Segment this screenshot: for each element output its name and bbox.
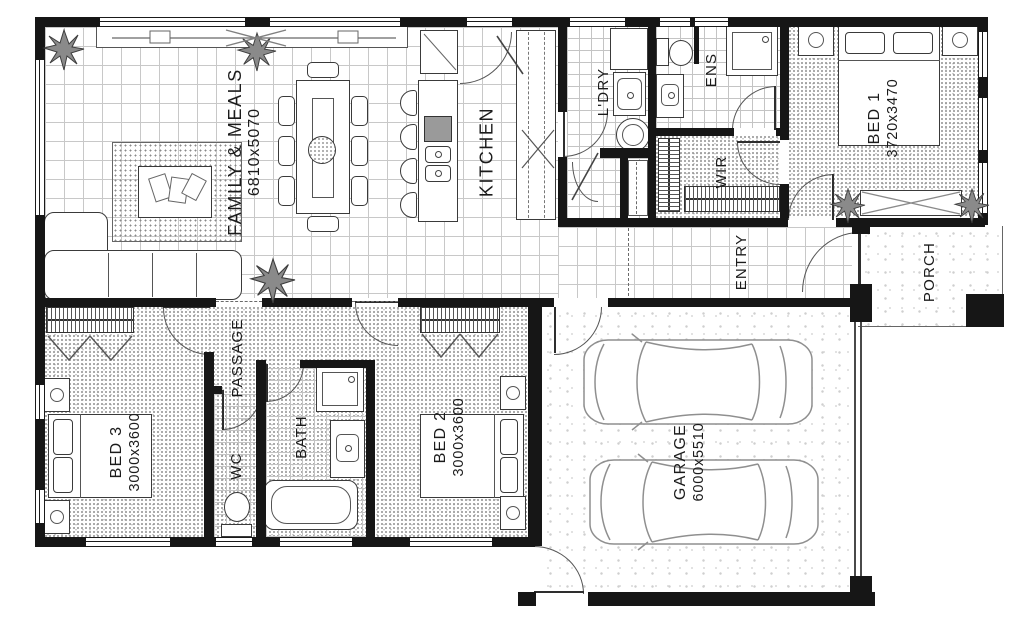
shower-drain [762,36,769,43]
basin-drain [345,445,352,452]
sofa-cushion-line [152,253,153,297]
wall [558,157,567,227]
window [410,537,492,547]
room-name: KITCHEN [478,107,497,197]
wall [262,298,352,307]
room-label-bed2: BED 2 3000x3600 [433,398,467,477]
wardrobe-rail [684,186,780,212]
window [978,98,988,150]
wall [204,386,222,394]
sink-drain [435,151,442,158]
sofa [44,250,242,300]
wall [780,26,789,140]
room-name: BED 1 [867,92,884,145]
wall [656,128,734,136]
room-label-wir: WIR [714,156,730,189]
trough-drain [627,92,634,99]
door-leaf [222,390,224,430]
wall [600,148,648,158]
toilet-bowl [669,40,693,66]
room-name: BATH [294,415,310,459]
pillow [53,419,73,455]
blanket-line [80,414,81,498]
window [86,537,170,547]
wall [608,298,872,307]
door-leaf [737,141,780,143]
tv-unit [96,26,408,48]
wall [204,352,214,540]
room-name: L'DRY [596,68,612,117]
room-label-entry: ENTRY [734,234,750,291]
room-name: WIR [714,156,730,189]
wall [398,298,528,307]
window [100,17,245,27]
door-leaf [534,591,584,593]
wall [694,26,699,64]
dining-chair [307,216,339,232]
room-dims: 6810x5070 [247,108,264,196]
washing-machine-drum [622,124,644,146]
porch-pier [966,294,1004,327]
centrepiece-bowl [308,136,336,164]
basin-drain [668,92,675,99]
wall [256,360,266,540]
ceiling-dashed-line [628,228,629,296]
pillow [500,457,518,493]
pillow [500,419,518,455]
linen-cupboard [628,160,648,216]
wall [300,360,374,368]
window [978,32,988,77]
cooktop [424,116,452,142]
laundry-bench [610,28,648,70]
linen-dashed-line [636,162,637,214]
wall [648,26,656,218]
window [695,17,728,27]
dining-chair [307,62,339,78]
wardrobe-rail [658,138,680,212]
dining-chair [278,136,295,166]
wall [558,17,567,112]
garage-door [854,320,856,578]
room-name: PORCH [922,242,938,302]
wall [528,298,542,546]
door-leaf [554,307,556,353]
window [978,163,988,213]
window [660,17,690,27]
wardrobe-rail [46,307,134,333]
window [280,537,352,547]
room-label-ensuite: ENS [704,53,720,87]
opening-dashed-line [352,301,398,302]
wall [588,592,875,606]
room-name: GARAGE [673,424,690,500]
fridge [420,30,458,74]
window [570,17,625,27]
pantry-shelf-line [544,32,545,218]
wall [35,298,216,307]
wardrobe-rail [420,307,500,333]
garage-door [860,320,862,578]
window [35,490,45,523]
room-label-laundry: L'DRY [596,68,612,117]
room-dims: 3720x3470 [886,79,901,158]
room-label-bed3: BED 3 3000x3600 [109,413,143,492]
dining-chair [278,96,295,126]
door-leaf [266,364,268,402]
wall [518,592,536,606]
room-name: BED 2 [433,411,450,464]
room-dims: 6000x5510 [692,423,707,502]
wall [366,360,375,540]
window [467,17,512,27]
sink-drain [435,170,442,177]
room-label-bed1: BED 1 3720x3470 [867,79,901,158]
bedside-lamp [50,510,64,524]
window [270,17,400,27]
wall [780,184,789,218]
room-name: ENS [704,53,720,87]
room-label-wc: WC [229,452,245,479]
toilet-cistern [221,524,252,537]
toilet-cistern [656,38,669,66]
window [35,385,45,419]
pillow [845,32,885,54]
bedside-lamp [808,32,824,48]
dining-chair [351,136,368,166]
dining-chair [351,176,368,206]
pantry-cabinet [516,30,556,220]
room-label-passage: PASSAGE [230,319,246,398]
bedside-lamp [50,388,64,402]
room-label-porch: PORCH [922,242,938,302]
room-label-bath: BATH [294,415,310,459]
door-leaf [774,86,776,130]
window [35,60,45,215]
room-name: PASSAGE [230,319,246,398]
room-dims: 3000x3600 [128,413,143,492]
blanket-line [494,414,495,498]
room-name: WC [229,452,245,479]
sofa-cushion-line [196,253,197,297]
floor-plan: FAMILY & MEALS 6810x5070 KITCHEN L'DRY E… [0,0,1031,642]
front-door-leaf [858,232,861,290]
opening-dashed-line [216,301,262,302]
room-name: FAMILY & MEALS [226,68,245,236]
room-label-family: FAMILY & MEALS 6810x5070 [226,68,264,236]
room-name: ENTRY [734,234,750,291]
wall [850,576,872,594]
room-name: BED 3 [109,426,126,479]
wall [560,218,788,227]
door-leaf [563,112,565,157]
room-dims: 3000x3600 [452,398,467,477]
door-leaf [832,174,834,220]
pillow [893,32,933,54]
window [216,537,252,547]
bedside-lamp [506,386,520,400]
dining-chair [278,176,295,206]
dresser [860,190,962,216]
coffee-table [138,166,212,218]
bathtub-inner [271,486,351,524]
toilet-bowl [224,492,250,522]
blanket-line [838,60,940,61]
bedside-lamp [506,506,520,520]
bedside-lamp [952,32,968,48]
wall [852,218,870,234]
dining-chair [351,96,368,126]
shower-drain [348,376,355,383]
room-label-garage: GARAGE 6000x5510 [673,423,707,502]
sofa-cushion-line [108,253,109,297]
pillow [53,457,73,493]
pantry-shelf-line [528,32,529,218]
room-label-kitchen: KITCHEN [478,107,497,197]
wall [620,158,628,218]
wall [850,284,872,307]
